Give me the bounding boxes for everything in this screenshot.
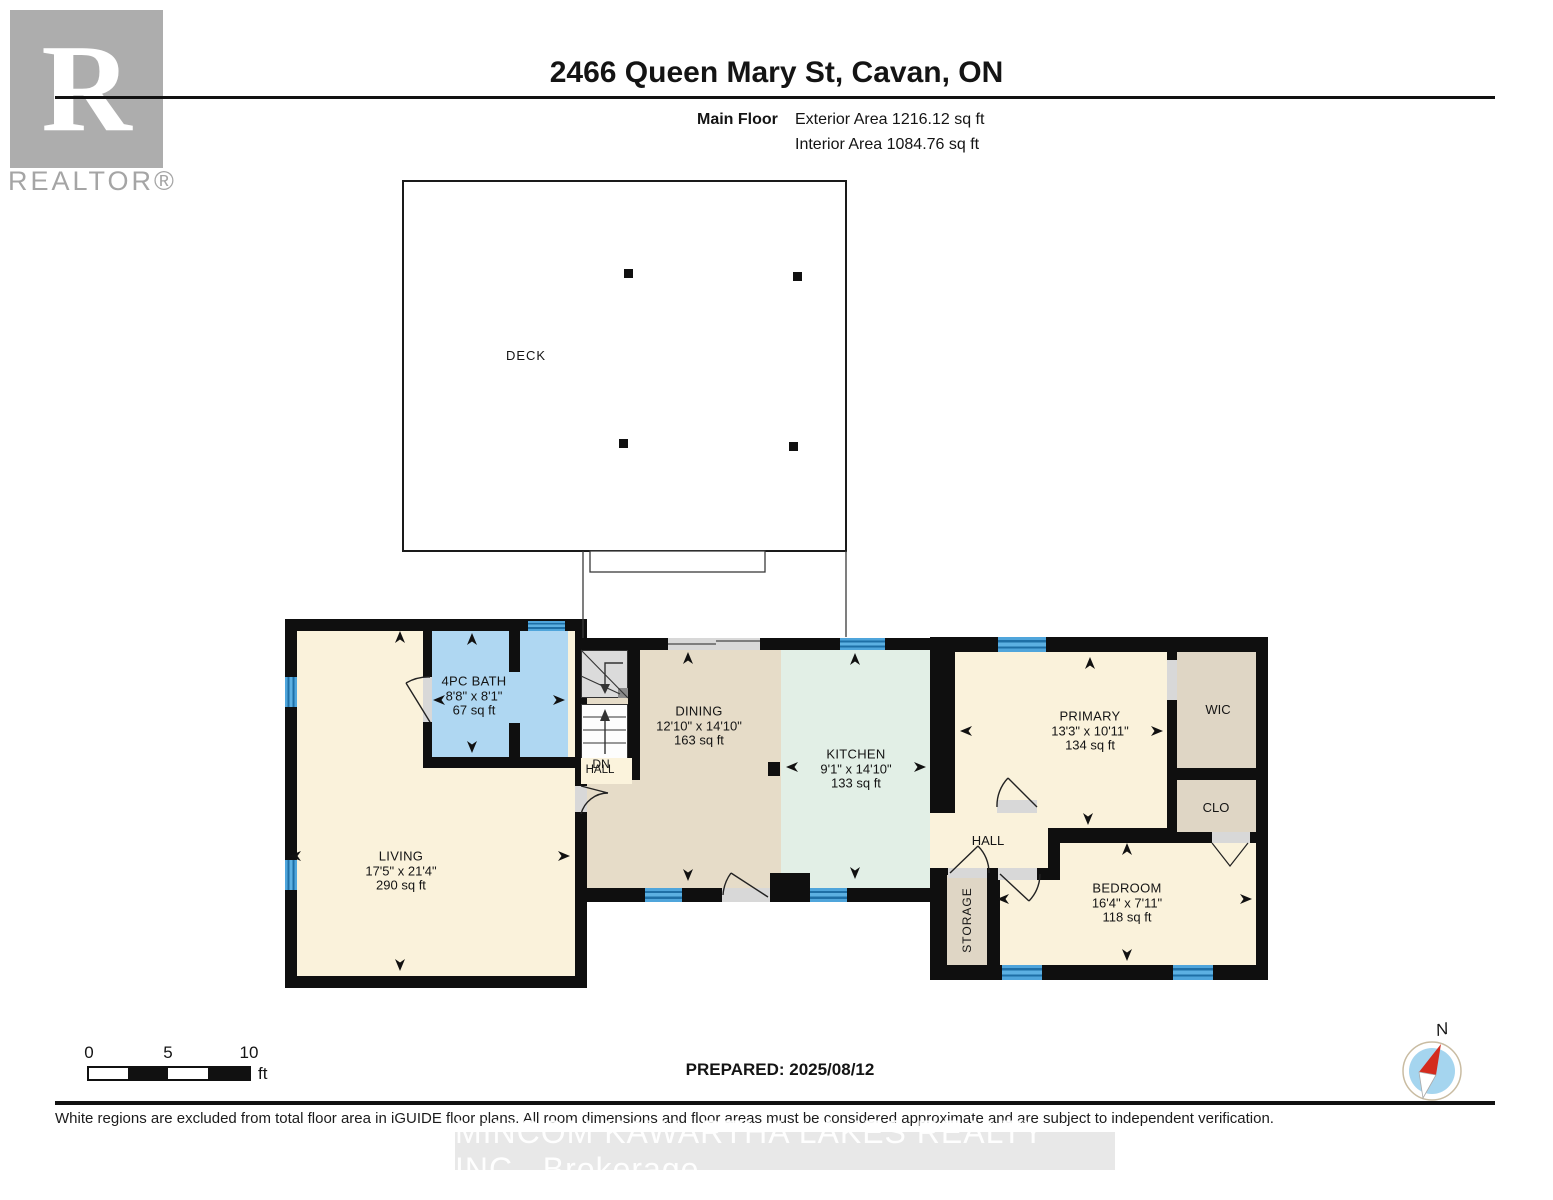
header-divider — [55, 96, 1495, 99]
window — [1173, 965, 1213, 980]
wic-label: WIC — [1205, 703, 1230, 718]
wall-bath-bottom — [423, 757, 587, 768]
bath-label: 4PC BATH 8'8" x 8'1" 67 sq ft — [441, 674, 506, 718]
window — [1002, 965, 1042, 980]
prepared-date: PREPARED: 2025/08/12 — [620, 1060, 940, 1080]
brokerage-watermark: MINCOM KAWARTHA LAKES REALTY INC., Broke… — [455, 1132, 1115, 1170]
door-opening-dining — [722, 888, 770, 902]
floorplan-page: R REALTOR® 2466 Queen Mary St, Cavan, ON… — [0, 0, 1553, 1200]
wall-dining-kitchen-pillar — [768, 762, 780, 776]
compass-north-label: N — [1434, 1019, 1450, 1041]
page-title: 2466 Queen Mary St, Cavan, ON — [0, 56, 1553, 90]
bedroom-label: BEDROOM 16'4" x 7'11" 118 sq ft — [1092, 881, 1162, 925]
living-label: LIVING 17'5" x 21'4" 290 sq ft — [365, 849, 436, 893]
stairs-landing-post — [618, 688, 628, 698]
window — [285, 860, 297, 890]
wall-bath-stub-bottom — [509, 723, 520, 757]
exterior-area-text: Exterior Area 1216.12 sq ft — [795, 111, 984, 129]
room-bedroom-ext — [1000, 880, 1060, 965]
sliding-door-deck — [668, 638, 760, 650]
plan-vector-overlay — [0, 0, 1553, 1200]
dining-label: DINING 12'10" x 14'10" 163 sq ft — [656, 704, 742, 748]
realtor-logo-text: REALTOR® — [8, 166, 177, 197]
compass-icon — [1403, 1042, 1461, 1100]
scale-tick-0: 0 — [84, 1043, 93, 1063]
scale-tick-10: 10 — [240, 1043, 259, 1063]
door-opening-wic — [1167, 660, 1177, 700]
primary-label: PRIMARY 13'3" x 10'11" 134 sq ft — [1051, 709, 1129, 753]
interior-area-text: Interior Area 1084.76 sq ft — [795, 136, 979, 154]
window — [645, 888, 682, 902]
scale-tick-5: 5 — [163, 1043, 172, 1063]
deck-landing-steps — [583, 551, 846, 638]
window — [528, 621, 565, 631]
hall-label: HALL — [972, 834, 1005, 849]
deck-label: DECK — [506, 349, 546, 364]
window — [285, 677, 297, 707]
window — [810, 888, 847, 902]
clo-label: CLO — [1203, 801, 1230, 816]
scale-bar — [88, 1067, 250, 1080]
footer-divider — [55, 1101, 1495, 1105]
stair-dn-label: DN — [592, 757, 609, 772]
door-opening-living — [575, 786, 587, 812]
deck-outline — [403, 181, 846, 551]
door-opening-primary — [997, 800, 1037, 813]
stairs-treads — [581, 704, 628, 760]
window — [840, 638, 885, 650]
storage-label: STORAGE — [960, 887, 975, 952]
scale-unit-label: ft — [258, 1064, 267, 1084]
floor-label: Main Floor — [697, 111, 778, 129]
door-opening-storage — [948, 868, 987, 878]
door-opening-clo — [1212, 832, 1250, 843]
kitchen-label: KITCHEN 9'1" x 14'10" 133 sq ft — [820, 747, 891, 791]
wall-dining-kitchen-chunk — [770, 873, 810, 888]
window — [998, 637, 1046, 652]
door-opening-bath — [423, 677, 432, 722]
door-opening-bedroom — [998, 868, 1037, 880]
wall-bath-stub-top — [509, 631, 520, 672]
